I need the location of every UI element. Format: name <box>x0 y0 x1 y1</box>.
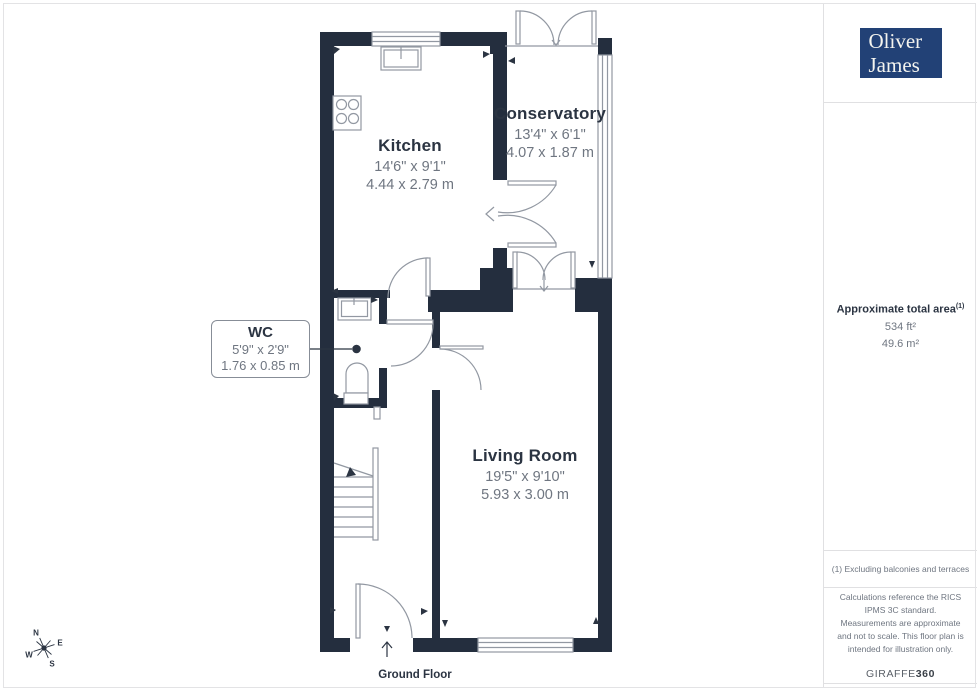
disclaimer-text: Calculations reference the RICS IPMS 3C … <box>836 591 966 656</box>
total-area-metric: 49.6 m² <box>882 338 919 350</box>
room-name: Living Room <box>472 446 577 466</box>
compass-east-label: E <box>57 639 62 648</box>
wc-basin-icon <box>338 298 371 320</box>
room-name: Kitchen <box>366 136 454 156</box>
total-area-cell: Approximate total area(1) 534 ft² 49.6 m… <box>824 103 977 551</box>
conservatory-window-icon <box>598 55 612 278</box>
compass-icon <box>34 638 55 658</box>
room-name: Conservatory <box>494 104 606 124</box>
wc-door-icon <box>387 320 433 366</box>
livingroom-window-icon <box>478 638 573 652</box>
total-area-heading: Approximate total area(1) <box>837 303 965 316</box>
room-dim-imperial: 14'6" x 9'1" <box>366 159 454 177</box>
room-dim-imperial: 5'9" x 2'9" <box>212 342 309 358</box>
livingroom-french-doors-icon <box>513 252 575 291</box>
kitchen-sink-icon <box>381 46 421 70</box>
room-name: WC <box>212 324 309 341</box>
conservatory-label: Conservatory 13'4" x 6'1" 4.07 x 1.87 m <box>494 104 606 162</box>
oliver-james-logo: Oliver James <box>860 28 942 78</box>
disclaimer-cell: Calculations reference the RICS IPMS 3C … <box>824 588 977 684</box>
room-dim-metric: 4.07 x 1.87 m <box>494 145 606 163</box>
logo-line1: Oliver <box>869 29 942 53</box>
room-dim-metric: 5.93 x 3.00 m <box>472 487 577 505</box>
compass-west-label: W <box>25 651 33 660</box>
logo-cell: Oliver James <box>824 3 977 103</box>
front-door-icon <box>356 584 412 638</box>
floorplan-page: Kitchen 14'6" x 9'1" 4.44 x 2.79 m Conse… <box>0 0 980 693</box>
hob-icon <box>333 96 361 130</box>
kitchen-window-icon <box>372 32 440 46</box>
stairs-icon <box>334 448 378 540</box>
kitchen-door-icon <box>388 258 430 298</box>
footnote-ref: (1) <box>956 303 965 310</box>
conservatory-kitchen-door-icon <box>486 181 556 247</box>
room-dim-imperial: 19'5" x 9'10" <box>472 469 577 487</box>
livingroom-label: Living Room 19'5" x 9'10" 5.93 x 3.00 m <box>472 446 577 504</box>
livingroom-door-icon <box>440 346 483 390</box>
wc-leader-dot <box>352 345 361 354</box>
room-dim-metric: 4.44 x 2.79 m <box>366 177 454 195</box>
total-area-imperial: 534 ft² <box>885 321 916 333</box>
provider-suffix: 360 <box>916 668 935 680</box>
room-dim-metric: 1.76 x 0.85 m <box>212 358 309 374</box>
compass-south-label: S <box>49 660 54 669</box>
room-dim-imperial: 13'4" x 6'1" <box>494 127 606 145</box>
provider-name: GIRAFFE <box>866 668 916 680</box>
compass-north-label: N <box>33 629 39 638</box>
giraffe360-logo: GIRAFFE360 <box>866 668 935 680</box>
wc-callout: WC 5'9" x 2'9" 1.76 x 0.85 m <box>211 320 310 378</box>
logo-line2: James <box>869 53 942 77</box>
conservatory-french-doors-icon <box>505 11 598 46</box>
footnote-text: (1) Excluding balconies and terraces <box>832 564 970 574</box>
floor-label: Ground Floor <box>378 669 451 681</box>
info-sidebar: Oliver James Approximate total area(1) 5… <box>823 3 977 688</box>
footnote-cell: (1) Excluding balconies and terraces <box>824 551 977 588</box>
entrance-arrow-icon <box>382 642 392 657</box>
toilet-icon <box>344 363 380 419</box>
kitchen-label: Kitchen 14'6" x 9'1" 4.44 x 2.79 m <box>366 136 454 194</box>
